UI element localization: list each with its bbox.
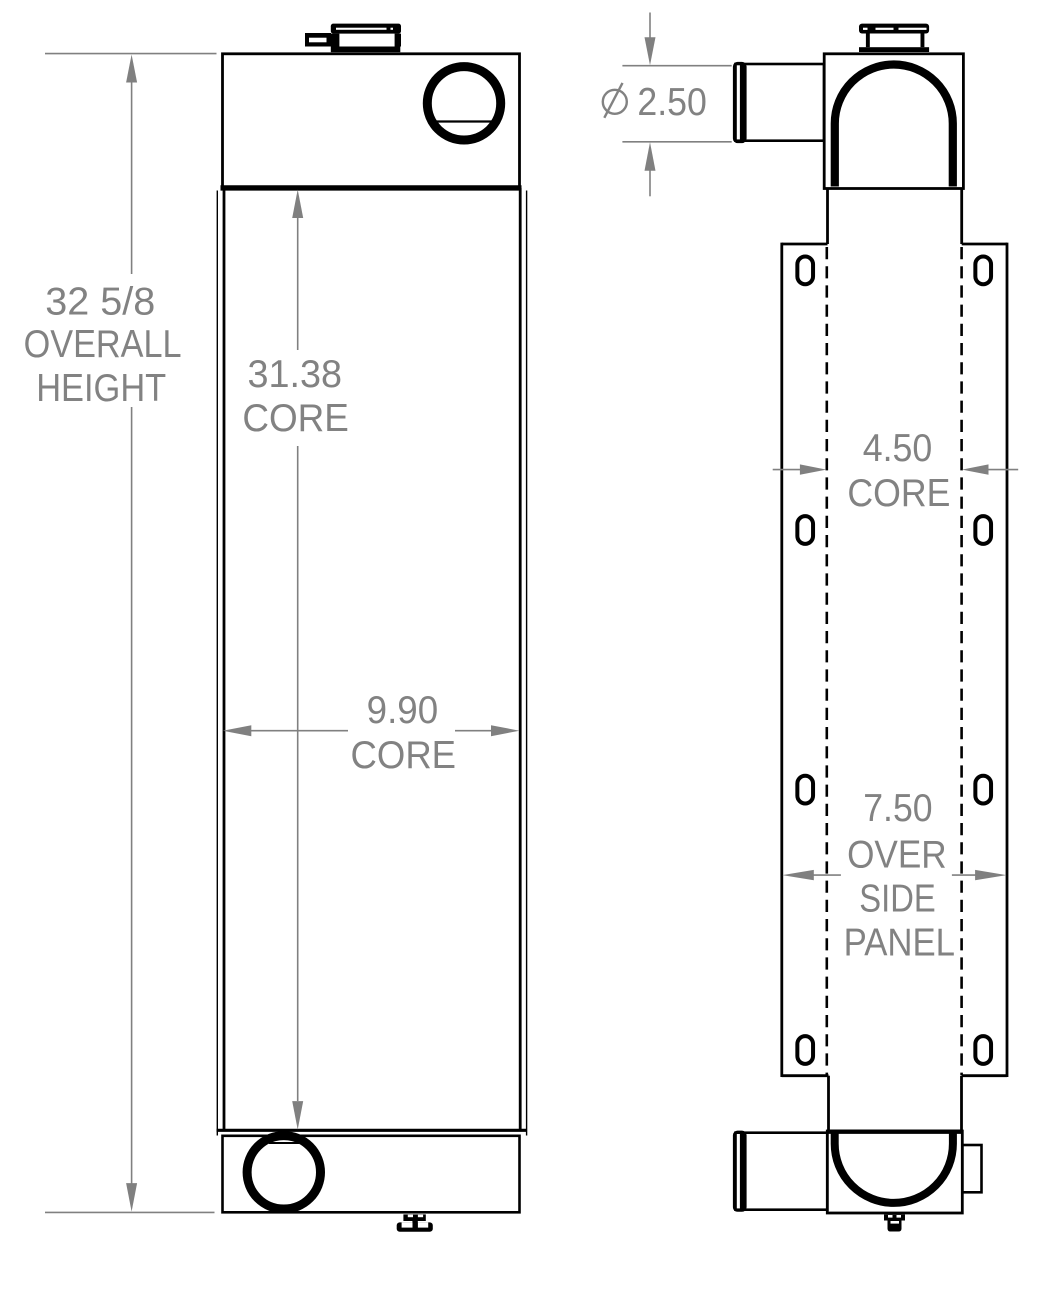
svg-text:2.50: 2.50 [637,81,707,124]
svg-text:31.38: 31.38 [248,353,343,396]
svg-text:CORE: CORE [351,734,457,777]
svg-text:4.50: 4.50 [863,427,933,470]
svg-text:PANEL: PANEL [844,922,955,965]
svg-text:OVERALL: OVERALL [24,323,182,366]
svg-text:32 5/8: 32 5/8 [45,280,155,323]
svg-text:SIDE: SIDE [859,878,935,921]
svg-text:CORE: CORE [242,397,349,440]
svg-text:CORE: CORE [847,472,950,515]
svg-text:OVER: OVER [847,833,947,876]
svg-text:HEIGHT: HEIGHT [36,367,166,410]
svg-text:9.90: 9.90 [367,689,439,732]
svg-text:7.50: 7.50 [863,787,932,830]
